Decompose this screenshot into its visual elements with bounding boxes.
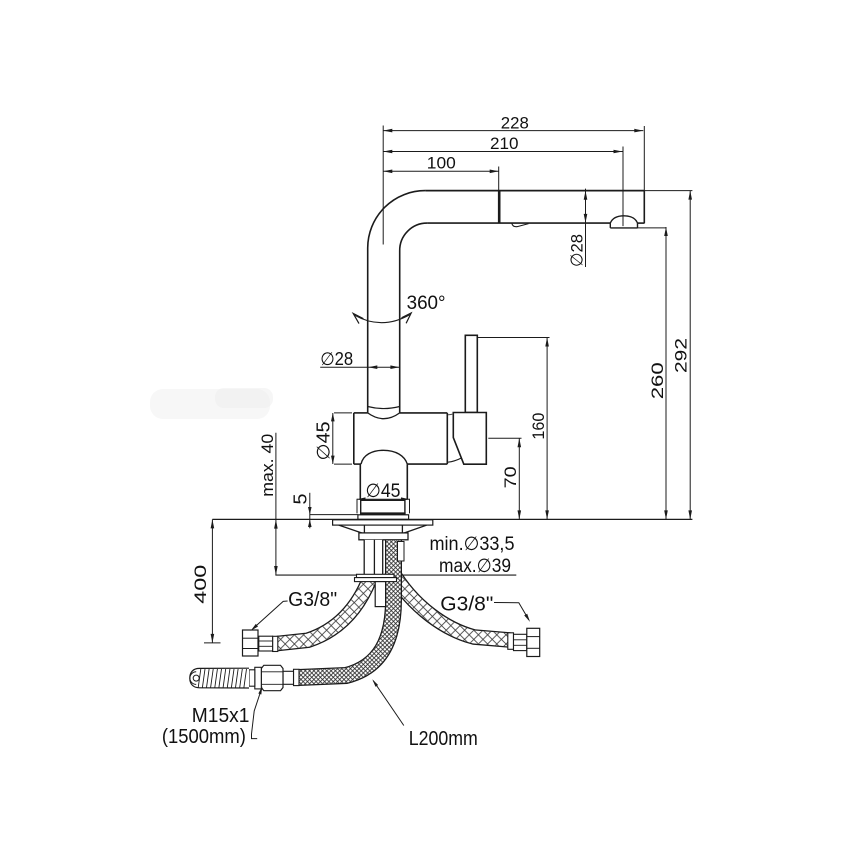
- svg-text:min.∅33,5: min.∅33,5: [430, 534, 515, 555]
- svg-text:5: 5: [291, 494, 311, 505]
- svg-text:∅45: ∅45: [314, 422, 334, 461]
- svg-text:228: 228: [501, 113, 529, 132]
- svg-text:max. 40: max. 40: [258, 434, 277, 497]
- svg-text:292: 292: [672, 338, 691, 373]
- svg-text:160: 160: [529, 413, 548, 440]
- svg-text:70: 70: [501, 466, 520, 488]
- svg-text:G3/8": G3/8": [440, 594, 493, 616]
- svg-text:∅28: ∅28: [320, 349, 353, 369]
- svg-text:260: 260: [648, 362, 667, 399]
- svg-text:∅45: ∅45: [366, 481, 401, 502]
- svg-text:(1500mm): (1500mm): [162, 726, 246, 748]
- svg-text:max.∅39: max.∅39: [439, 556, 511, 577]
- svg-text:L200mm: L200mm: [409, 728, 478, 750]
- svg-text:100: 100: [427, 154, 456, 173]
- svg-text:210: 210: [490, 134, 519, 153]
- svg-text:400: 400: [191, 565, 210, 604]
- svg-text:∅28: ∅28: [568, 234, 587, 267]
- svg-text:360°: 360°: [407, 293, 446, 314]
- svg-text:G3/8": G3/8": [288, 589, 337, 611]
- svg-text:M15x1: M15x1: [192, 705, 250, 727]
